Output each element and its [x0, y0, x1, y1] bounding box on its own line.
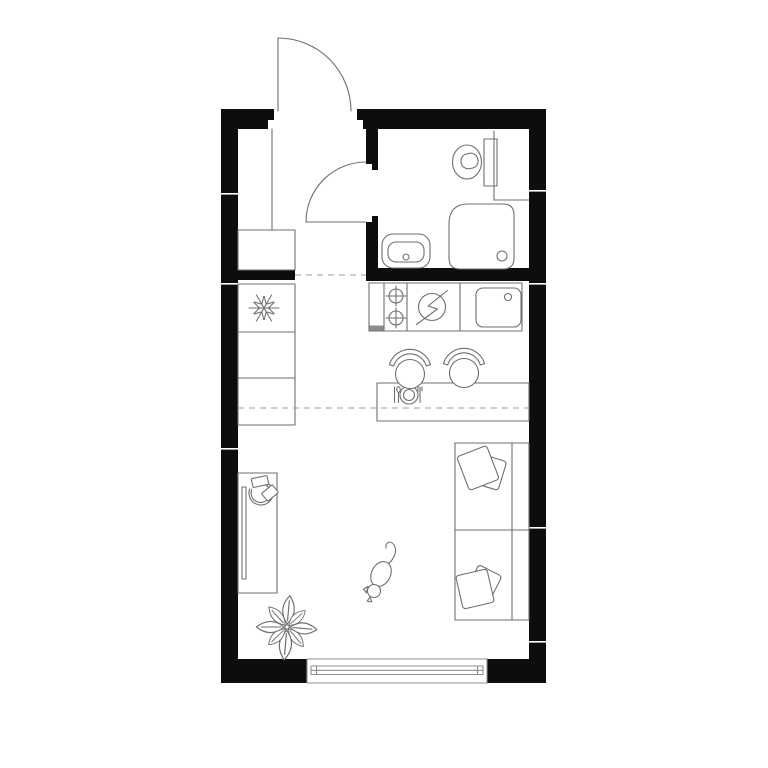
shower-partition	[494, 131, 529, 200]
kitchen-sink	[476, 288, 521, 327]
cat-head	[368, 585, 381, 598]
dining-table	[377, 383, 529, 421]
wall-jamb	[372, 216, 378, 222]
bathroom-door	[306, 162, 366, 222]
wall-bottom-left	[221, 659, 307, 683]
wall-right	[529, 109, 546, 683]
desk	[238, 473, 279, 593]
kitchen-counter	[369, 283, 522, 331]
wardrobe	[238, 230, 295, 270]
wall-bathroom-south	[366, 268, 529, 281]
fixtures	[238, 38, 529, 683]
monitor	[242, 487, 246, 579]
wall-left	[221, 109, 238, 683]
wall-bottom-right	[487, 659, 546, 683]
entry-door-jamb-right	[357, 120, 363, 129]
dining-chair-right	[443, 348, 484, 387]
wall-top-right	[357, 109, 546, 129]
wall-bathroom-west-lower	[366, 222, 378, 268]
bathroom-sink	[382, 234, 430, 268]
cat	[364, 542, 396, 602]
floor-plan	[0, 0, 768, 768]
wall-entry-stub	[238, 270, 295, 280]
plant	[256, 595, 317, 660]
kitchen-cabinets	[238, 332, 295, 425]
toilet	[453, 139, 498, 186]
wall-bathroom-west-upper	[366, 129, 378, 164]
refrigerator	[238, 284, 295, 332]
entry-door-jamb-left	[268, 120, 274, 129]
counter-end-cap	[370, 326, 384, 331]
entry-door	[278, 38, 351, 111]
floor-plan-canvas	[0, 0, 768, 768]
wall-jamb	[372, 164, 378, 170]
window	[307, 659, 487, 683]
sofa-bed	[455, 443, 529, 620]
cat-ear	[367, 597, 372, 602]
